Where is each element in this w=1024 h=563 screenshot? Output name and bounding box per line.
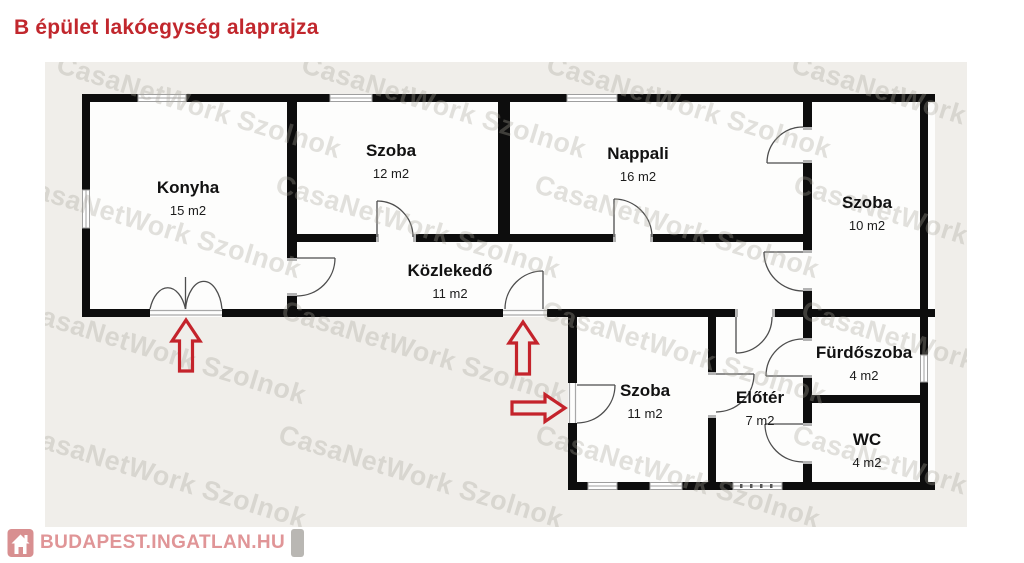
room-label-szoba12: Szoba 12 m2	[366, 141, 416, 181]
room-area: 4 m2	[853, 455, 882, 470]
room-label-szoba11: Szoba 11 m2	[620, 381, 670, 421]
room-area: 7 m2	[736, 413, 784, 428]
room-label-wc: WC 4 m2	[853, 430, 882, 470]
room-name: Konyha	[157, 178, 219, 198]
room-area: 4 m2	[816, 368, 912, 383]
room-label-konyha: Konyha 15 m2	[157, 178, 219, 218]
room-area: 11 m2	[620, 406, 670, 421]
room-label-eloter: Előtér 7 m2	[736, 388, 784, 428]
house-icon	[7, 528, 34, 558]
scrollbar-thumb[interactable]	[291, 529, 304, 557]
room-area: 10 m2	[842, 218, 892, 233]
room-name: Nappali	[607, 144, 668, 164]
brand-bar: BUDAPEST.INGATLAN.HU	[7, 528, 304, 558]
room-area: 12 m2	[366, 166, 416, 181]
room-name: Szoba	[366, 141, 416, 161]
room-label-furdoszoba: Fürdőszoba 4 m2	[816, 343, 912, 383]
floorplan-page: B épület lakóegység alaprajza	[0, 0, 1024, 563]
wall-right	[920, 94, 928, 490]
room-area: 15 m2	[157, 203, 219, 218]
room-name: Közlekedő	[407, 261, 492, 281]
room-label-kozlekedo: Közlekedő 11 m2	[407, 261, 492, 301]
room-name: WC	[853, 430, 882, 450]
room-name: Előtér	[736, 388, 784, 408]
room-area: 16 m2	[607, 169, 668, 184]
room-label-szoba10: Szoba 10 m2	[842, 193, 892, 233]
floorplan-drawing: CasaNetWork SzolnokCasaNetWork SzolnokCa…	[0, 0, 1024, 563]
room-name: Szoba	[842, 193, 892, 213]
room-label-nappali: Nappali 16 m2	[607, 144, 668, 184]
window-szoba11-bottom-1	[588, 483, 617, 490]
room-name: Szoba	[620, 381, 670, 401]
portal-logo-text: BUDAPEST.INGATLAN.HU	[40, 532, 285, 554]
room-name: Fürdőszoba	[816, 343, 912, 363]
wall-bath-wc-divider	[812, 395, 928, 403]
room-area: 11 m2	[407, 286, 492, 301]
